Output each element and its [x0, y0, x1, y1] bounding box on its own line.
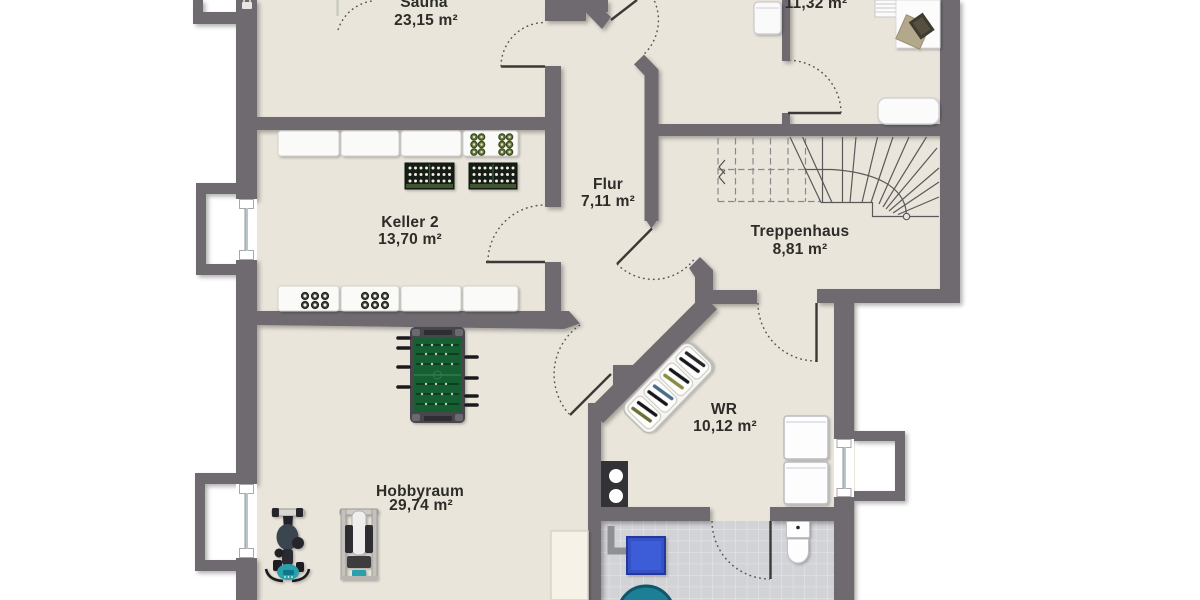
svg-text:10,12 m²: 10,12 m² [693, 418, 757, 435]
svg-text:8,81 m²: 8,81 m² [773, 241, 828, 258]
svg-text:13,70 m²: 13,70 m² [378, 231, 442, 248]
svg-text:Flur: Flur [593, 176, 623, 193]
svg-text:11,32 m²: 11,32 m² [785, 0, 848, 12]
svg-text:Sauna: Sauna [400, 0, 448, 11]
svg-text:7,11 m²: 7,11 m² [581, 193, 635, 210]
svg-text:Keller 2: Keller 2 [381, 214, 439, 231]
svg-text:Treppenhaus: Treppenhaus [751, 223, 850, 240]
svg-text:23,15 m²: 23,15 m² [394, 12, 458, 29]
svg-text:29,74 m²: 29,74 m² [389, 497, 453, 514]
svg-text:WR: WR [711, 401, 737, 418]
